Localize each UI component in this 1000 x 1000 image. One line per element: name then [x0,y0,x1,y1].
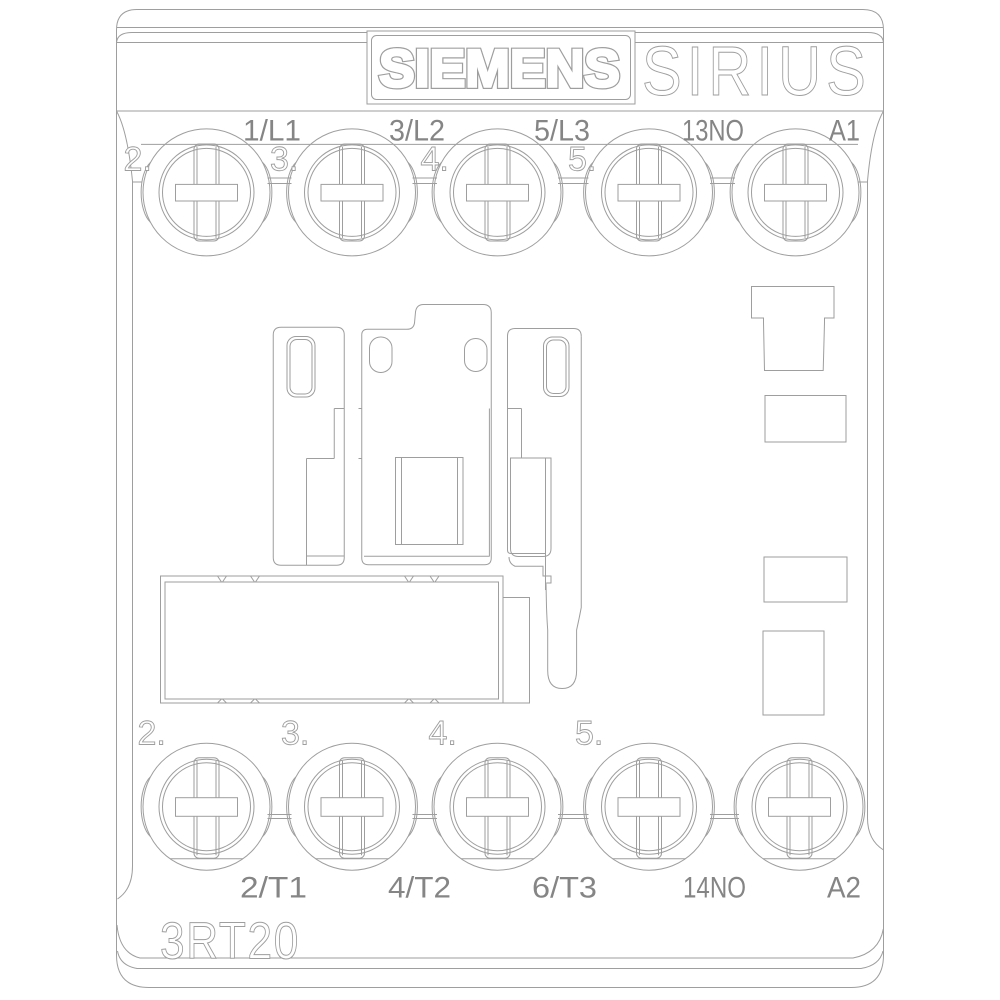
svg-text:2/T1: 2/T1 [240,872,307,905]
svg-text:13NO: 13NO [682,115,744,148]
svg-text:14NO: 14NO [683,872,746,905]
svg-text:4.: 4. [421,141,449,179]
svg-text:2.: 2. [124,141,152,179]
svg-text:A2: A2 [827,872,861,905]
svg-text:A1: A1 [829,115,860,148]
svg-text:3.: 3. [270,141,298,179]
svg-text:5.: 5. [568,141,596,179]
svg-text:4.: 4. [429,715,457,753]
svg-text:6/T3: 6/T3 [532,872,597,905]
svg-text:3.: 3. [281,715,309,753]
svg-text:5.: 5. [575,715,603,753]
svg-text:4/T2: 4/T2 [388,872,451,905]
svg-text:SIRIUS: SIRIUS [642,31,871,110]
svg-text:3RT20: 3RT20 [160,912,300,970]
svg-text:2.: 2. [138,715,166,753]
svg-text:SIEMENS: SIEMENS [379,40,620,99]
